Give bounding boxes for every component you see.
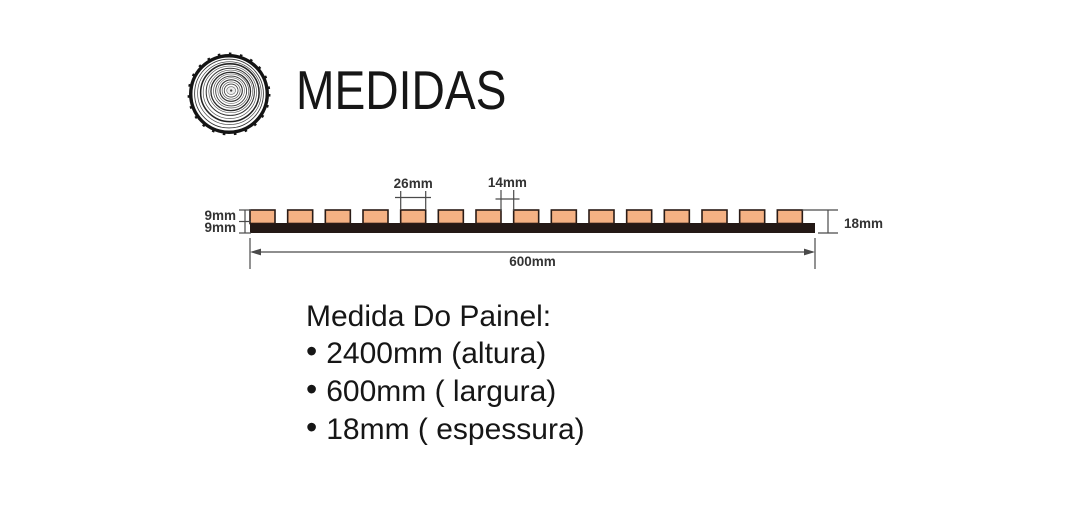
slat	[702, 210, 727, 224]
slat	[514, 210, 539, 224]
dim-slat-width: 26mm	[394, 176, 433, 209]
label-total-thickness: 18mm	[844, 216, 883, 231]
spec-item-thickness: • 18mm ( espessura)	[306, 410, 585, 448]
spec-item-text: 600mm ( largura)	[326, 374, 556, 410]
bullet-icon: •	[306, 371, 317, 407]
panel-measurements: Medida Do Painel: • 2400mm (altura) • 60…	[306, 300, 585, 448]
panel-slats	[250, 210, 802, 224]
slat	[401, 210, 426, 224]
slat	[250, 210, 275, 224]
slat	[288, 210, 313, 224]
slat	[438, 210, 463, 224]
page: MEDIDAS 9mm 9mm 26mm 14mm	[0, 0, 1072, 509]
dim-slat-and-base-thickness: 9mm 9mm	[204, 208, 251, 235]
wood-log-icon	[186, 51, 272, 137]
slat	[777, 210, 802, 224]
slat	[627, 210, 652, 224]
spec-item-width: • 600mm ( largura)	[306, 372, 585, 410]
label-gap-width: 14mm	[488, 175, 527, 190]
dim-gap-width: 14mm	[488, 175, 527, 211]
label-panel-width: 600mm	[509, 254, 556, 269]
panel-base	[250, 223, 815, 233]
panel-cross-section-diagram: 9mm 9mm 26mm 14mm 18mm	[180, 165, 890, 277]
slat	[363, 210, 388, 224]
slat	[325, 210, 350, 224]
arrowhead-left	[250, 249, 261, 256]
spec-item-text: 18mm ( espessura)	[326, 412, 584, 448]
specs-heading: Medida Do Painel:	[306, 300, 585, 334]
arrowhead-right	[804, 249, 815, 256]
bullet-icon: •	[306, 333, 317, 369]
spec-item-text: 2400mm (altura)	[326, 336, 546, 372]
slat	[551, 210, 576, 224]
label-slat-width: 26mm	[394, 176, 433, 191]
slat	[740, 210, 765, 224]
dim-panel-width: 600mm	[250, 238, 815, 269]
page-title: MEDIDAS	[296, 63, 506, 118]
slat	[476, 210, 501, 224]
label-base-thickness: 9mm	[204, 220, 236, 235]
bullet-icon: •	[306, 409, 317, 445]
slat	[589, 210, 614, 224]
spec-item-height: • 2400mm (altura)	[306, 334, 585, 372]
slat	[664, 210, 689, 224]
